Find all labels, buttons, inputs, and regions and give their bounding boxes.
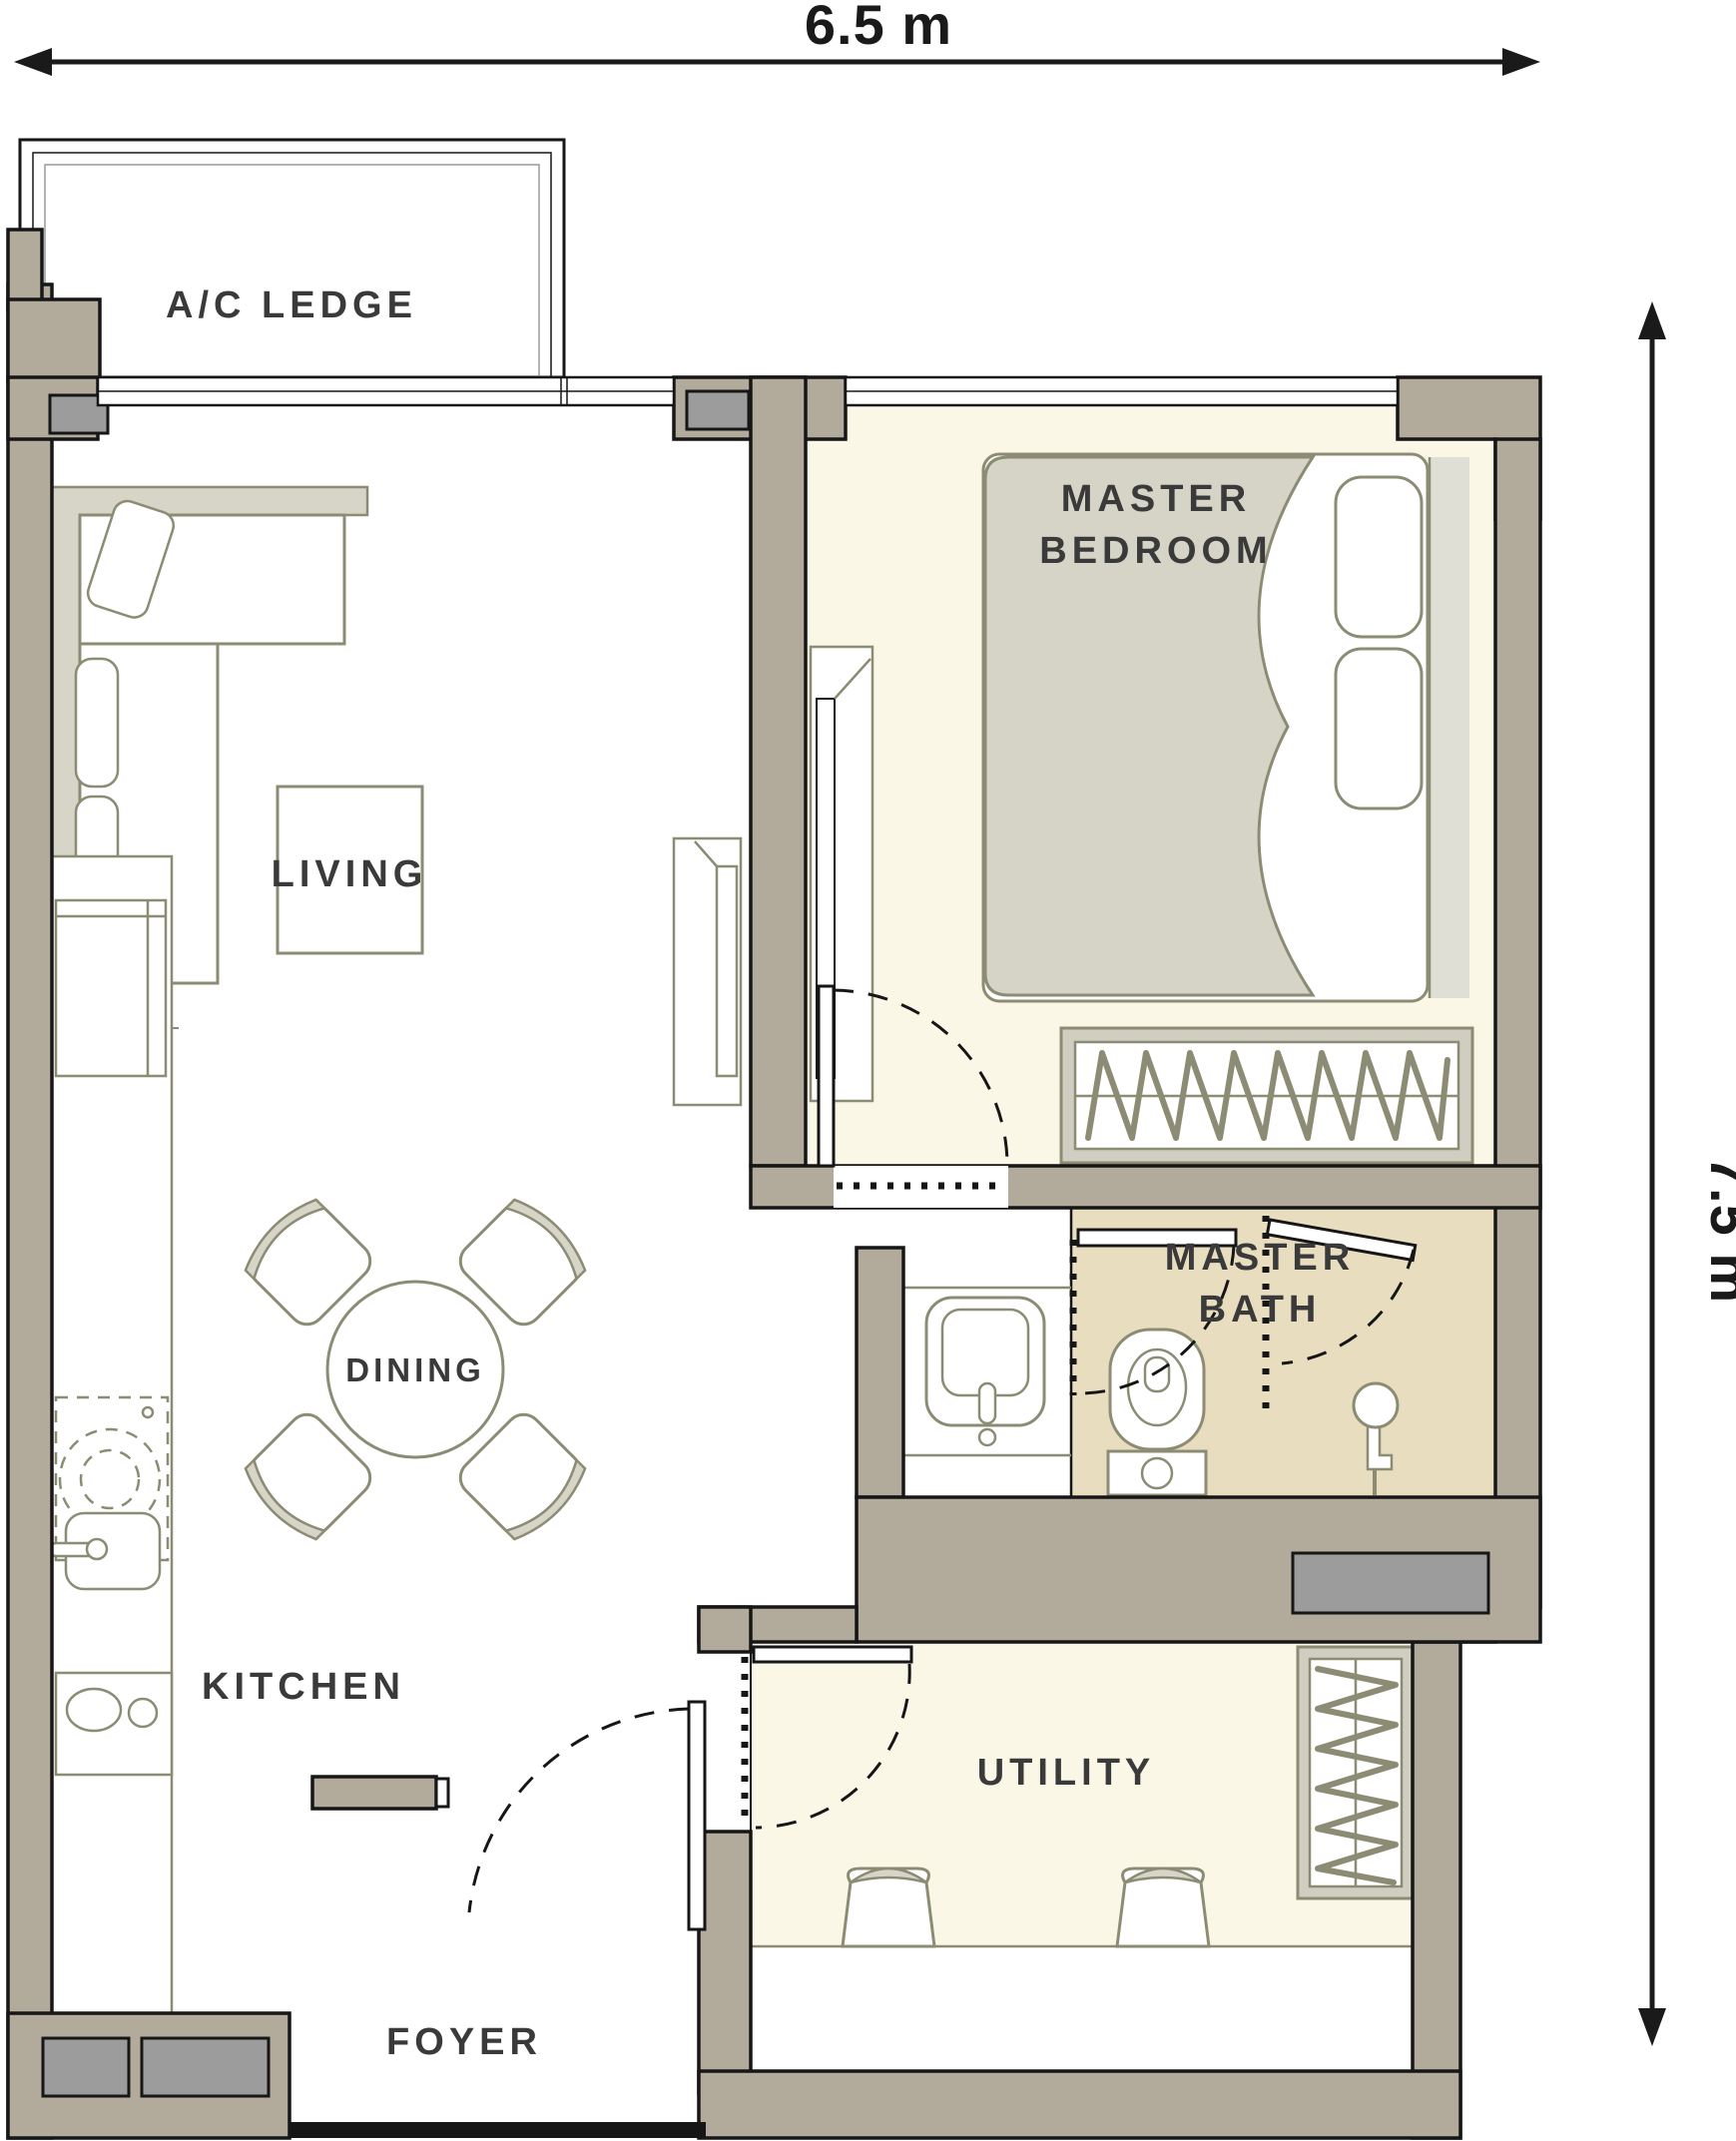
toilet-icon <box>1108 1330 1206 1495</box>
dimension-height: 7.5 m <box>1699 1156 1736 1304</box>
label-dining: DINING <box>345 1351 485 1388</box>
desk-stool-icon <box>1117 1869 1209 1946</box>
ac-condenser-ledge <box>1293 1553 1488 1613</box>
kitchen-sink-icon <box>50 1513 160 1589</box>
service-duct <box>43 2038 129 2096</box>
dimension-arrow-icon: 6.5 m <box>14 0 1540 76</box>
utility-desk <box>751 1946 1413 2071</box>
label-master-bath-1: MASTER <box>1165 1237 1355 1279</box>
pillow-icon <box>1336 477 1422 637</box>
wardrobe-hangers-icon <box>1061 1028 1472 1163</box>
label-master-bedroom-2: BEDROOM <box>1039 530 1272 572</box>
pillow-icon <box>1336 649 1422 808</box>
window-icon <box>98 377 674 405</box>
window-icon <box>846 377 1398 405</box>
label-master-bath-2: BATH <box>1199 1289 1322 1331</box>
desk-stool-icon <box>843 1869 934 1946</box>
label-utility: UTILITY <box>977 1752 1156 1794</box>
fridge-icon <box>56 900 166 1076</box>
wardrobe-hangers-icon <box>1298 1647 1414 1898</box>
dimension-width: 6.5 m <box>805 0 952 56</box>
column-block <box>687 391 749 429</box>
label-kitchen: KITCHEN <box>202 1666 405 1708</box>
label-foyer: FOYER <box>386 2021 542 2063</box>
label-living: LIVING <box>272 853 428 895</box>
hob-icon <box>56 1673 172 1775</box>
tv-console-icon <box>674 838 741 1105</box>
service-duct <box>142 2038 269 2096</box>
dimension-arrow-icon: 7.5 m <box>1638 301 1736 2046</box>
floor-plan: A/C LEDGE LIVING MASTER BEDROOM DINING M… <box>0 0 1736 2141</box>
label-master-bedroom-1: MASTER <box>1061 478 1251 520</box>
kitchen-counter <box>50 856 172 2013</box>
label-ac-ledge: A/C LEDGE <box>166 284 417 326</box>
